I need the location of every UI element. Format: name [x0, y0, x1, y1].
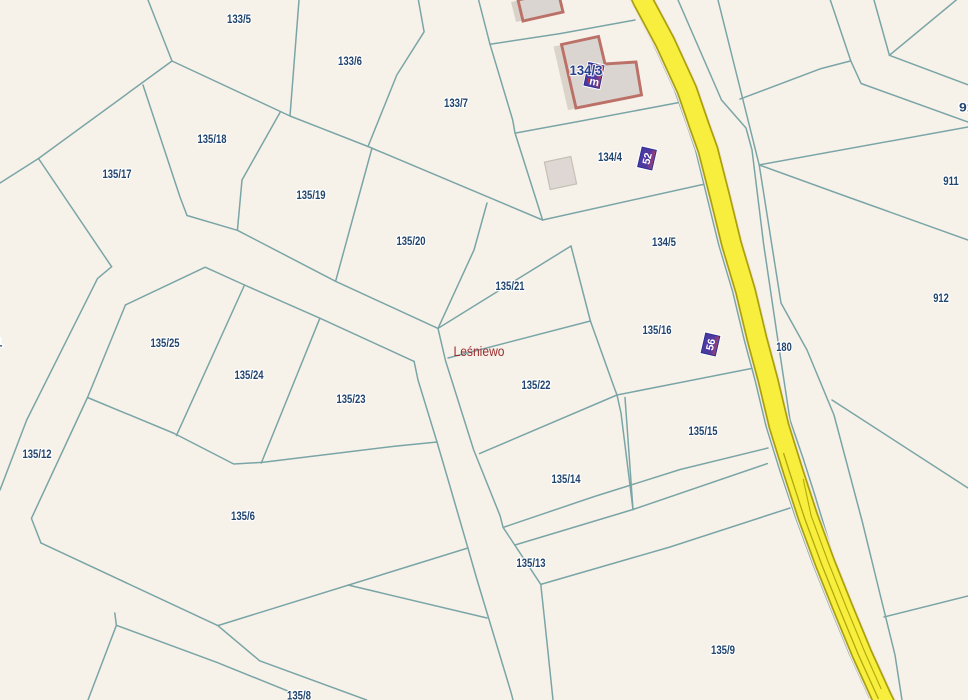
- svg-text:135/9: 135/9: [711, 643, 735, 657]
- svg-text:135/24: 135/24: [235, 368, 264, 382]
- svg-text:911: 911: [943, 174, 959, 188]
- svg-text:135/20: 135/20: [397, 234, 426, 248]
- svg-text:135/8: 135/8: [287, 689, 311, 700]
- svg-text:912: 912: [933, 291, 949, 305]
- svg-text:135/25: 135/25: [151, 336, 180, 350]
- svg-text:133/7: 133/7: [444, 96, 468, 110]
- svg-text:135/15: 135/15: [689, 424, 718, 438]
- svg-text:134/4: 134/4: [598, 150, 622, 164]
- svg-text:135/6: 135/6: [231, 509, 255, 523]
- svg-text:135/13: 135/13: [517, 556, 546, 570]
- svg-text:134/5: 134/5: [652, 235, 676, 249]
- svg-text:133/6: 133/6: [338, 54, 362, 68]
- svg-text:135/22: 135/22: [522, 378, 551, 392]
- svg-text:180: 180: [776, 340, 792, 354]
- svg-text:135/16: 135/16: [643, 323, 672, 337]
- svg-text:11: 11: [0, 336, 3, 350]
- svg-text:135/23: 135/23: [337, 392, 366, 406]
- svg-text:135/17: 135/17: [103, 167, 132, 181]
- svg-text:133/5: 133/5: [227, 12, 251, 26]
- svg-text:135/12: 135/12: [23, 447, 52, 461]
- svg-text:135/14: 135/14: [552, 472, 581, 486]
- svg-text:135/19: 135/19: [297, 188, 326, 202]
- svg-text:135/21: 135/21: [496, 279, 525, 293]
- svg-text:Leśniewo: Leśniewo: [454, 343, 505, 359]
- svg-text:91: 91: [959, 101, 968, 115]
- svg-text:135/18: 135/18: [198, 132, 227, 146]
- svg-text:134/3: 134/3: [570, 62, 603, 78]
